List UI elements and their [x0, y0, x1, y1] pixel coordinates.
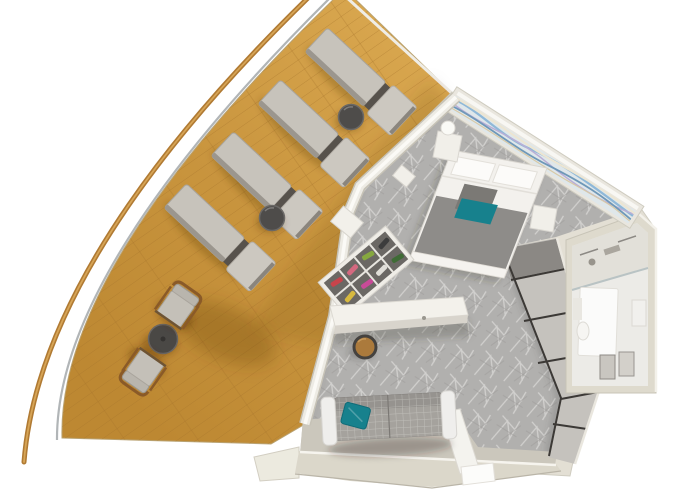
- sofa: [321, 391, 458, 460]
- toilet-bowl: [577, 322, 589, 340]
- bathroom-cabinet-1: [600, 355, 615, 379]
- bathroom: [566, 214, 656, 393]
- shower-drain: [589, 259, 596, 266]
- desk-handle: [422, 316, 426, 320]
- vanity-sink: [632, 300, 646, 326]
- bedside-lamp: [441, 121, 455, 135]
- nightstand-right: [530, 205, 557, 232]
- bathroom-cabinet-2: [619, 352, 634, 376]
- toilet-tank: [573, 298, 582, 320]
- floorplan-render: [0, 0, 680, 491]
- nightstand-left: [433, 131, 462, 162]
- sofa-arm-right: [441, 391, 457, 440]
- sofa-arm-left: [321, 397, 337, 446]
- door-threshold: [461, 463, 495, 485]
- floorplan-stage: [0, 0, 680, 491]
